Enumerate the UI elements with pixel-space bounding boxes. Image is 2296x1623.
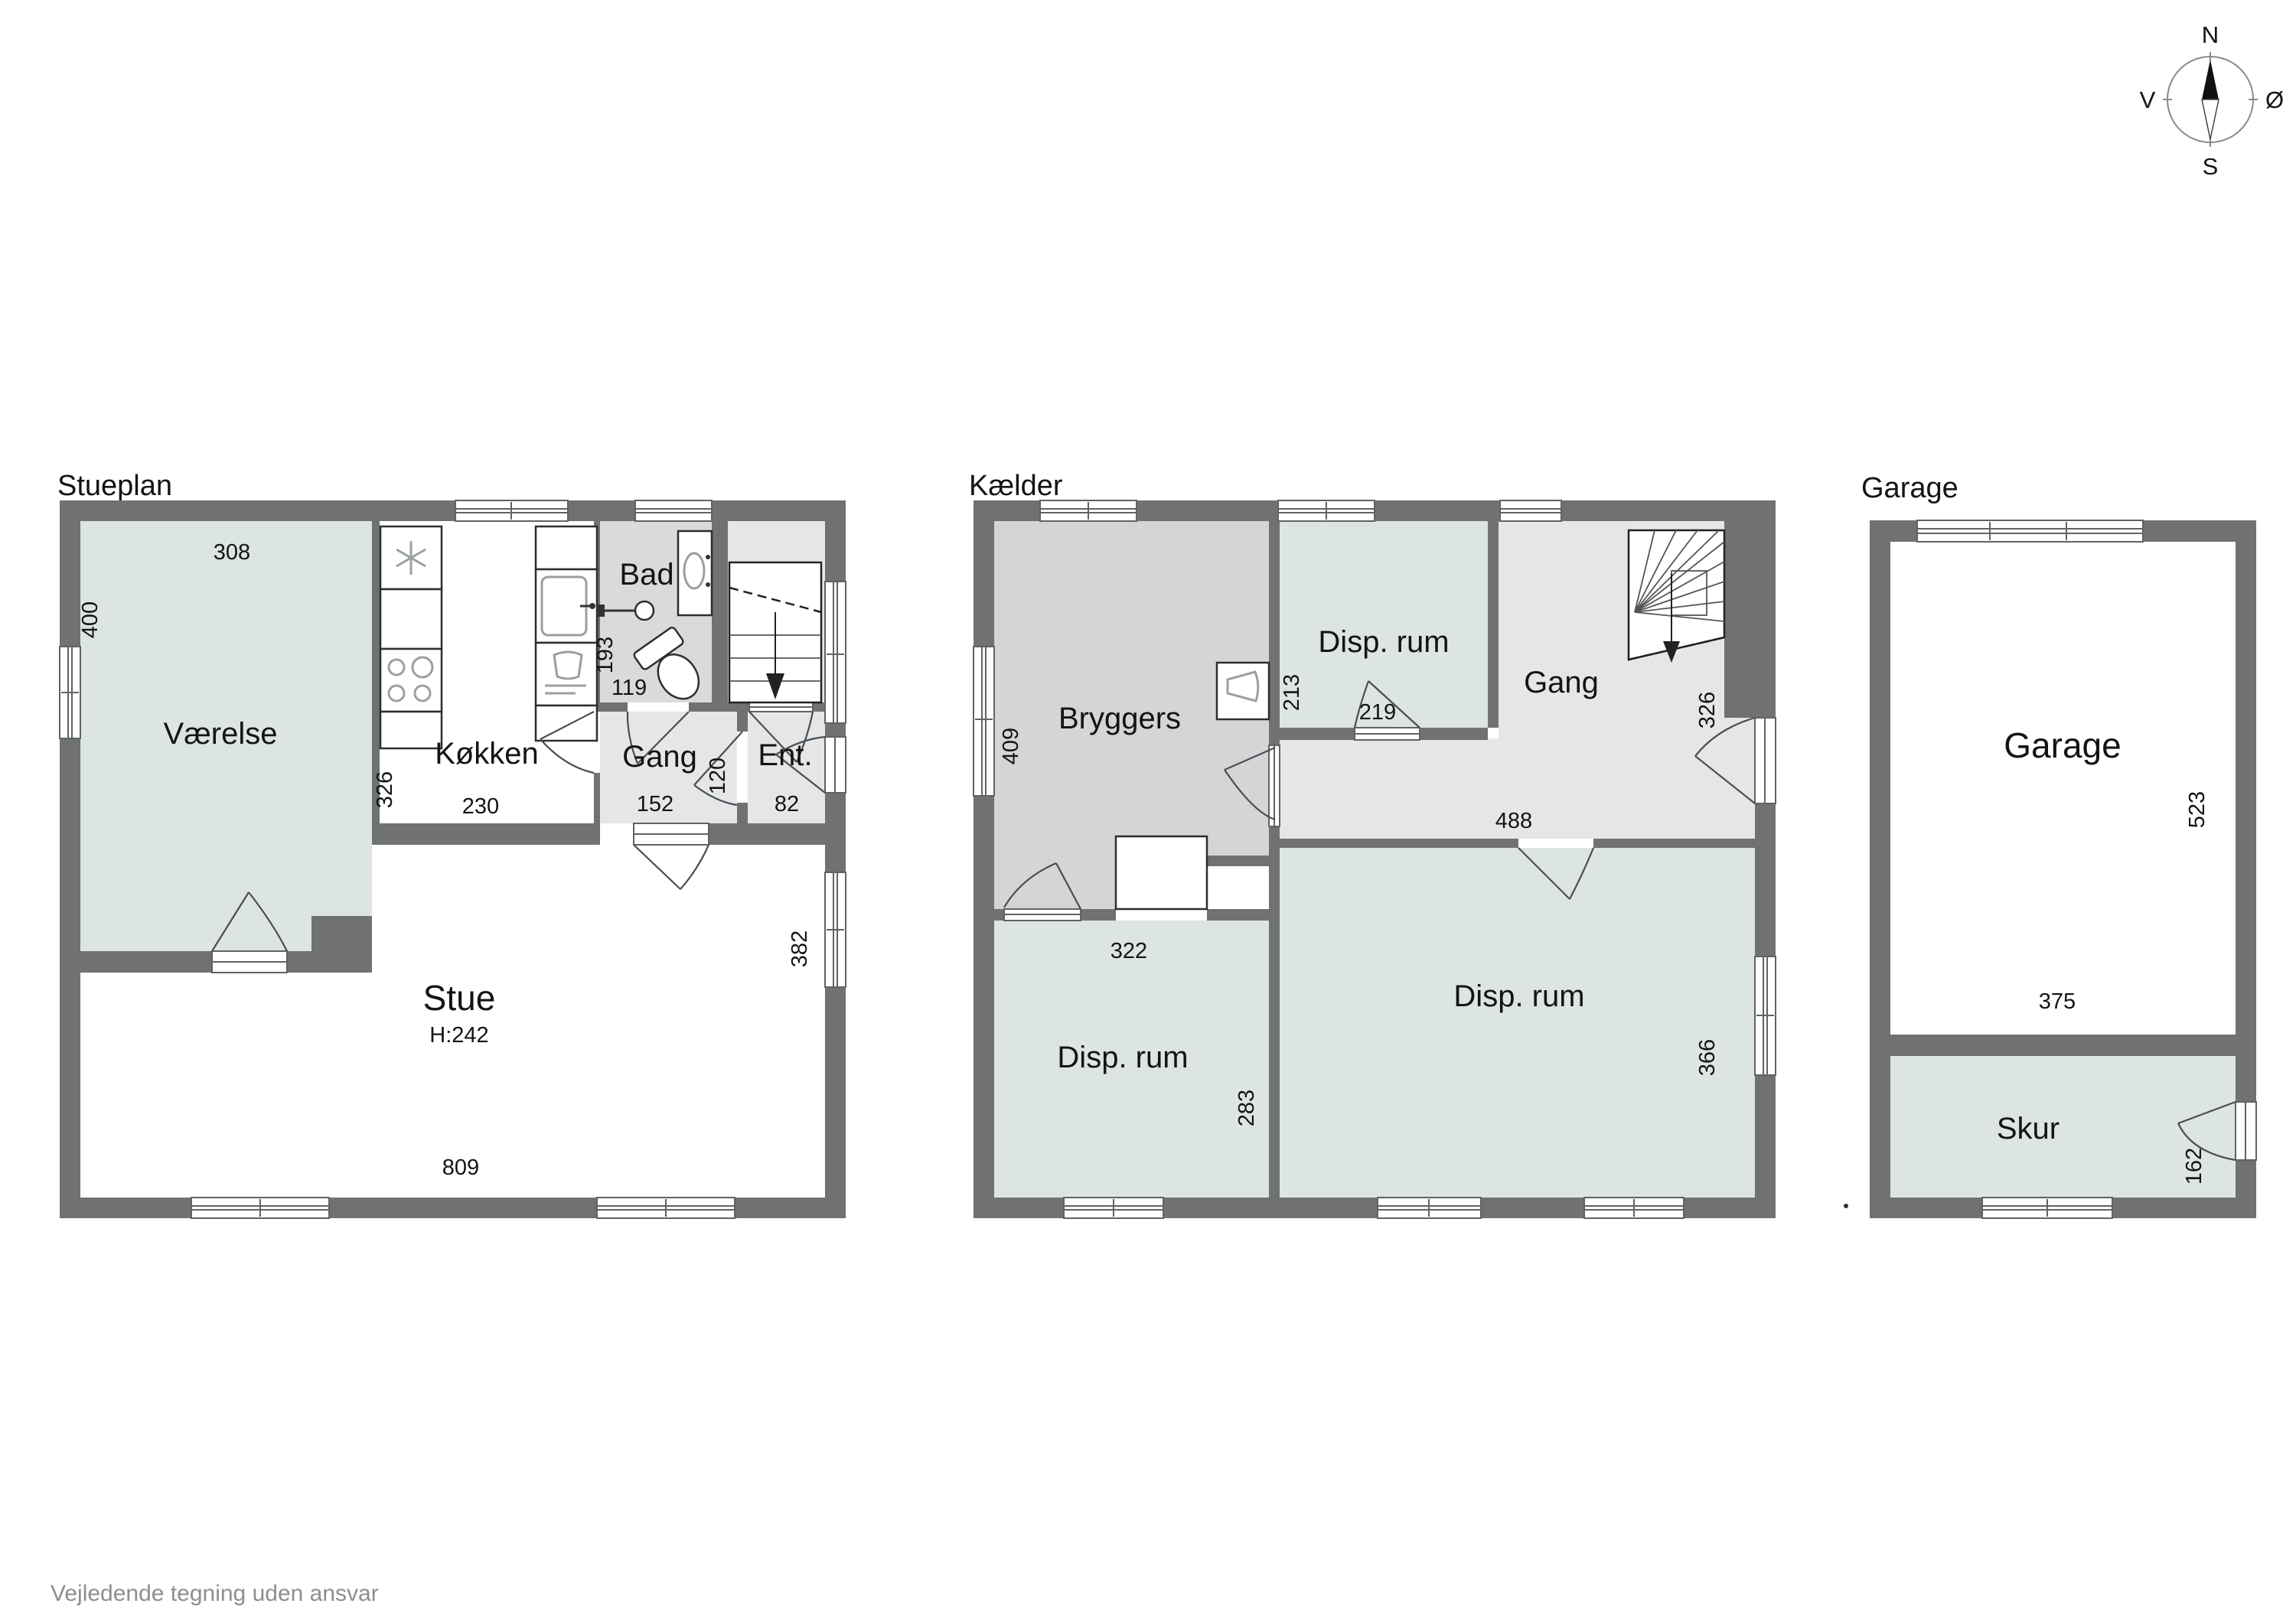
dim-152: 152 <box>637 792 673 816</box>
drawing-dot <box>1844 1204 1848 1208</box>
door-threshold <box>634 823 709 845</box>
room-label-disp-rum-top: Disp. rum <box>1318 625 1449 659</box>
wall-notch <box>1207 866 1269 909</box>
garage-room-fills <box>1890 542 2236 1198</box>
room-label-bad: Bad <box>619 558 673 592</box>
dim-119: 119 <box>612 676 647 700</box>
dim-400: 400 <box>78 601 103 638</box>
dim-120: 120 <box>706 758 730 794</box>
door-threshold <box>2236 1102 2256 1160</box>
compass-needle-north <box>2202 60 2219 99</box>
fridge-icon <box>380 526 442 589</box>
stove-icon <box>380 649 442 712</box>
window <box>825 872 846 987</box>
dim-809: 809 <box>442 1155 479 1180</box>
freezer-box <box>1116 836 1207 909</box>
door-threshold <box>1755 718 1776 803</box>
compass-west-label: V <box>2140 86 2156 113</box>
disclaimer-text: Vejledende tegning uden ansvar <box>51 1581 379 1606</box>
window <box>1040 500 1137 521</box>
dim-375: 375 <box>2039 989 2076 1014</box>
compass-needle-south <box>2202 99 2219 139</box>
kitchen-sink-icon <box>536 569 597 643</box>
staircase-icon <box>729 562 821 702</box>
garage-title: Garage <box>1861 472 1958 504</box>
wall-niche-icon <box>1217 663 1269 719</box>
dim-409: 409 <box>999 728 1023 764</box>
room-label-garage: Garage <box>2004 725 2121 765</box>
room-label-disp-rum-right: Disp. rum <box>1453 979 1584 1013</box>
counter-cabinet <box>536 706 597 741</box>
window <box>191 1198 329 1218</box>
door-gap <box>628 702 689 712</box>
door-threshold <box>749 702 813 712</box>
compass-south-label: S <box>2203 153 2219 180</box>
window <box>60 647 80 738</box>
dim-382: 382 <box>788 930 812 967</box>
dim-326-kaelder: 326 <box>1695 692 1720 728</box>
room-garage <box>1890 542 2236 1035</box>
bath-sink-icon <box>678 531 712 615</box>
room-gang-corridor <box>1280 738 1499 839</box>
dim-283: 283 <box>1234 1090 1259 1126</box>
compass-east-label: Ø <box>2265 86 2284 113</box>
counter-cabinet <box>380 712 442 748</box>
room-label-disp-rum-left: Disp. rum <box>1057 1041 1188 1074</box>
door-threshold <box>1004 909 1081 921</box>
stueplan-title: Stueplan <box>57 470 172 502</box>
stueplan-floor-plan: Stueplan <box>57 470 846 1218</box>
door-gap <box>1518 839 1593 848</box>
counter-cabinet <box>536 526 597 569</box>
dim-213: 213 <box>1280 674 1304 711</box>
dim-162: 162 <box>2182 1148 2206 1185</box>
room-disp-rum-top <box>1280 521 1488 728</box>
garage-floor-plan: Garage Garage 523 375 Skur 162 <box>1844 472 2256 1218</box>
dishwasher-icon <box>536 643 597 706</box>
door-threshold <box>825 737 846 793</box>
dim-366: 366 <box>1695 1039 1720 1076</box>
window <box>1064 1198 1163 1218</box>
door-threshold <box>212 951 287 973</box>
door-gap <box>737 732 748 803</box>
kaelder-title: Kælder <box>969 470 1063 502</box>
dim-82: 82 <box>775 792 799 816</box>
room-disp-rum-right <box>1280 848 1755 1198</box>
window <box>1278 500 1375 521</box>
window <box>1378 1198 1481 1218</box>
window <box>974 647 994 796</box>
dim-219: 219 <box>1359 700 1396 725</box>
dim-322: 322 <box>1110 939 1147 963</box>
door-threshold <box>1355 728 1420 740</box>
dim-230: 230 <box>462 794 499 819</box>
door-threshold <box>1269 745 1280 826</box>
window <box>597 1198 735 1218</box>
floor-plan-canvas: Stueplan <box>0 0 2296 1623</box>
room-label-vaerelse: Værelse <box>164 717 278 751</box>
dim-326: 326 <box>373 771 397 808</box>
window <box>1755 957 1776 1075</box>
window <box>1917 520 2143 542</box>
window <box>825 582 846 723</box>
window <box>1500 500 1561 521</box>
dim-193: 193 <box>593 637 618 673</box>
room-label-gang-kaelder: Gang <box>1524 666 1599 699</box>
window <box>1982 1198 2112 1218</box>
dim-308: 308 <box>214 540 250 565</box>
room-label-bryggers: Bryggers <box>1058 702 1181 735</box>
compass-rose-icon: N S V Ø <box>2140 21 2284 180</box>
dim-488: 488 <box>1495 809 1532 833</box>
room-label-skur: Skur <box>1997 1112 2060 1146</box>
kaelder-floor-plan: Kælder <box>969 470 1776 1218</box>
counter-cabinet <box>380 589 442 649</box>
window <box>455 500 568 521</box>
room-label-ent: Ent. <box>758 738 812 772</box>
window <box>635 500 712 521</box>
dim-ceiling-height: H:242 <box>429 1023 488 1048</box>
room-label-stue: Stue <box>423 978 496 1018</box>
compass-north-label: N <box>2202 21 2219 48</box>
window <box>1584 1198 1684 1218</box>
dim-523: 523 <box>2185 791 2210 828</box>
room-label-koekken: Køkken <box>435 737 539 771</box>
floor-plan-document: Stueplan <box>0 0 2296 1623</box>
room-label-gang: Gang <box>622 740 697 774</box>
